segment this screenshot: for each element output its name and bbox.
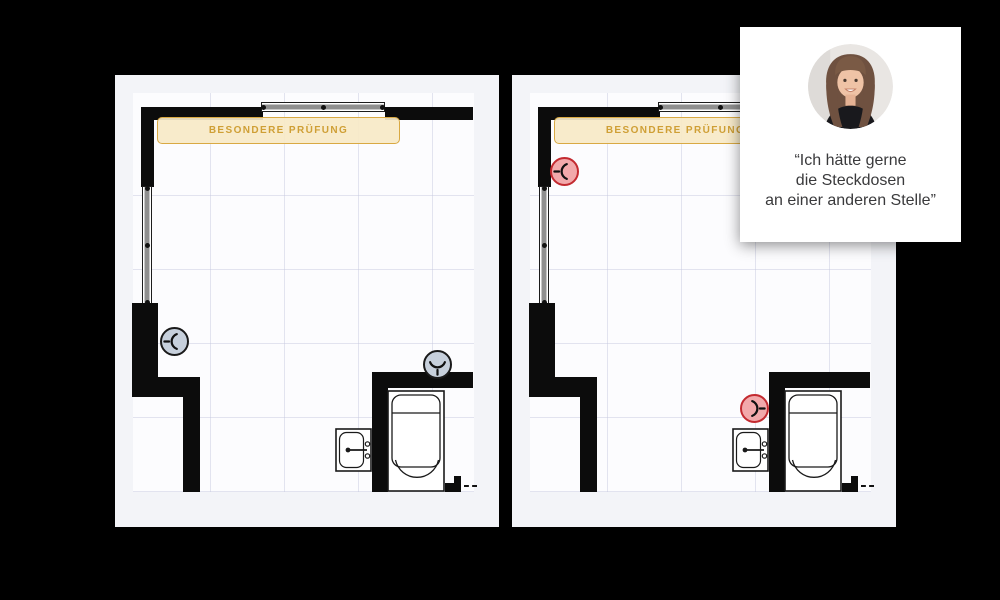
wall-stub [851, 476, 858, 483]
wall-bath-vertical [769, 372, 785, 492]
customer-portrait-illustration [808, 44, 893, 129]
wall-left-upper [141, 107, 154, 187]
socket-icon-highlight [740, 394, 769, 423]
bathtub [387, 390, 445, 492]
sink [732, 428, 769, 472]
wall-bath-vertical [372, 372, 388, 492]
wall-left-lower [132, 303, 158, 379]
window-left [539, 186, 549, 305]
window-marker [718, 105, 723, 110]
wall-bottom [183, 395, 200, 492]
quote-line-2: die Steckdosen [740, 171, 961, 191]
window-marker [658, 105, 663, 110]
wall-stub [445, 483, 461, 492]
wall-left-lower [529, 303, 555, 379]
scene-background: BESONDERE PRÜFUNG [0, 0, 1000, 600]
socket-icon-highlight [550, 157, 579, 186]
window-marker [542, 186, 547, 191]
sink [335, 428, 372, 472]
window-marker [321, 105, 326, 110]
bathtub [784, 390, 842, 492]
wall-jut [529, 377, 597, 397]
wall-jut [132, 377, 200, 397]
window-marker [145, 243, 150, 248]
special-check-banner: BESONDERE PRÜFUNG [157, 117, 400, 144]
quote-card: “Ich hätte gerne die Steckdosen an einer… [740, 27, 961, 242]
wall-cut-dash [861, 485, 874, 487]
socket-icon [423, 350, 452, 379]
wall-bottom [580, 395, 597, 492]
window-top [261, 102, 385, 112]
special-check-banner-label: BESONDERE PRÜFUNG [209, 125, 348, 136]
wall-stub [842, 483, 858, 492]
window-left [142, 186, 152, 305]
quote-text: “Ich hätte gerne die Steckdosen an einer… [740, 151, 961, 211]
floorplan-card-before: BESONDERE PRÜFUNG [115, 75, 499, 527]
wall-stub [454, 476, 461, 483]
window-marker [542, 243, 547, 248]
avatar [808, 44, 893, 129]
window-marker [261, 105, 266, 110]
window-marker [145, 186, 150, 191]
quote-line-1: “Ich hätte gerne [740, 151, 961, 171]
socket-icon [160, 327, 189, 356]
wall-left-upper [538, 107, 551, 187]
special-check-banner-label: BESONDERE PRÜFUNG [606, 125, 745, 136]
quote-line-3: an einer anderen Stelle” [740, 191, 961, 211]
wall-cut-dash [464, 485, 477, 487]
